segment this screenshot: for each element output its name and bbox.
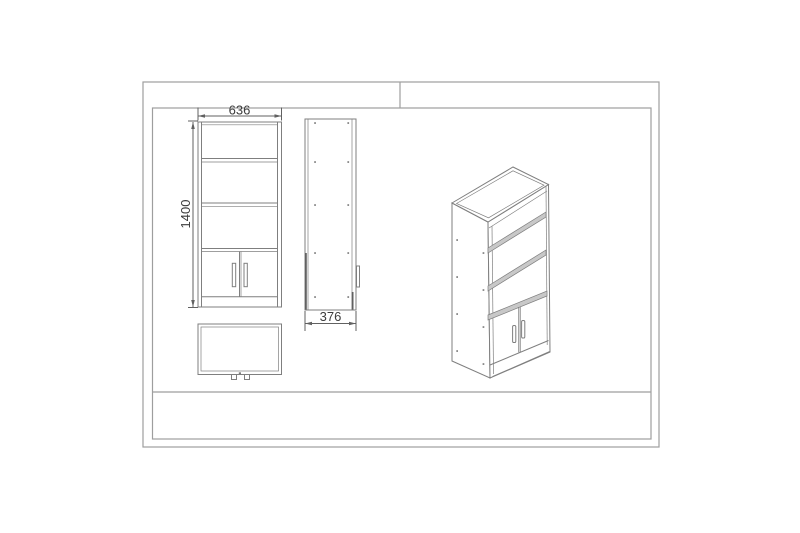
connector-dot (483, 252, 485, 254)
height-dimension-label: 1400 (178, 200, 193, 229)
isometric-view (452, 167, 550, 378)
connector-dot (456, 313, 458, 315)
connector-dot (347, 296, 349, 298)
center-mark (239, 372, 241, 374)
technical-drawing-page: 636 1400 376 (0, 0, 800, 533)
connector-dot (314, 252, 316, 254)
width-dimension-label: 636 (229, 103, 251, 118)
connector-dot (483, 326, 485, 328)
connector-dot (483, 363, 485, 365)
connector-dot (347, 204, 349, 206)
connector-dot (314, 122, 316, 124)
connector-dot (456, 276, 458, 278)
drawing-canvas: 636 1400 376 (0, 0, 800, 533)
page-background (0, 0, 800, 533)
connector-dot (347, 161, 349, 163)
connector-dot (456, 239, 458, 241)
connector-dot (314, 204, 316, 206)
connector-dot (456, 350, 458, 352)
connector-dot (347, 122, 349, 124)
connector-dot (483, 289, 485, 291)
connector-dot (314, 161, 316, 163)
connector-dot (314, 296, 316, 298)
depth-dimension-label: 376 (320, 309, 342, 324)
connector-dot (347, 252, 349, 254)
